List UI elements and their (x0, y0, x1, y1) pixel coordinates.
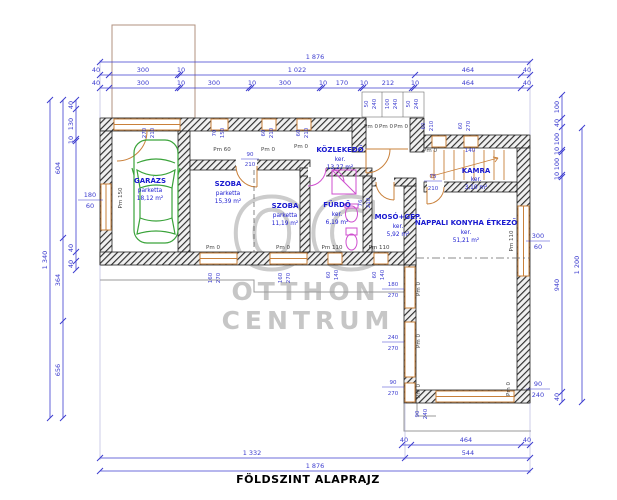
room-finish: parketta (216, 191, 241, 197)
room-name: SZOBA (272, 202, 299, 210)
room-name: SZOBA (215, 180, 242, 188)
opening-label: 270 (216, 272, 222, 283)
opening-label: 60 (296, 129, 302, 136)
room-area: 18,12 m² (137, 195, 163, 202)
dim-label: 300 (532, 232, 544, 240)
pm-label: Pm 0 (506, 382, 512, 396)
room-area: 51,21 m² (453, 237, 479, 244)
dim-label: 300 (137, 66, 149, 74)
opening-label: 140 (465, 148, 476, 154)
dim-label: 50 (364, 100, 370, 107)
drawing-title: FÖLDSZINT ALAPRAJZ (236, 472, 380, 486)
dim-label: 10 (411, 79, 419, 87)
opening-label: 160 (278, 272, 284, 283)
pm-label: Pm 0 (276, 245, 290, 251)
opening-label: 240 (423, 408, 429, 419)
dim-label: 50 (406, 100, 412, 107)
opening-label: 60 (458, 122, 464, 129)
room-area: 15,39 m² (215, 198, 241, 205)
opening-label: 210 (150, 127, 156, 138)
opening-label: 75 (430, 174, 437, 180)
opening-label: 150 (220, 127, 226, 138)
opening-label: 70 (212, 129, 218, 136)
dim-label: 464 (462, 79, 474, 87)
opening-label: 60 (421, 122, 427, 129)
room-finish: parketta (273, 213, 298, 219)
room-label-nappali: NAPPALI KONYHA ÉTKEZŐ ker. 51,21 m² (415, 218, 517, 244)
opening-label: 270 (142, 127, 148, 138)
dim-label: 1 200 (573, 256, 581, 275)
opening-label: 240 (388, 335, 399, 341)
dim-label: 40 (67, 260, 75, 268)
pm-label: Pm 0 (394, 124, 408, 130)
dim-label: 40 (67, 244, 75, 252)
room-name: KÖZLEKEDŐ (316, 145, 363, 154)
dim-label: 464 (460, 436, 472, 444)
opening-label: 180 (388, 282, 399, 288)
room-name: GARÁZS (134, 176, 166, 185)
dim-label: 100 (553, 101, 561, 113)
room-label-szoba1: SZOBA parketta 15,39 m² (215, 180, 242, 205)
room-area: 11,19 m² (272, 220, 298, 227)
dim-label: 212 (382, 79, 394, 87)
dim-label: 10 (177, 66, 185, 74)
pm-label: Pm 0 (206, 245, 220, 251)
dim-label: 10 (360, 79, 368, 87)
dim-label: 300 (279, 79, 291, 87)
dim-label: 100 (553, 158, 561, 170)
dim-label: 60 (534, 243, 542, 251)
opening-label: 90 (390, 380, 397, 386)
room-label-szoba2: SZOBA parketta 11,19 m² (272, 202, 299, 227)
dim-label: 1 022 (288, 66, 307, 74)
dim-label: 1 332 (243, 449, 262, 457)
opening-label: 90 (415, 410, 421, 417)
dim-label: 240 (393, 98, 399, 109)
dim-label: 130 (67, 118, 75, 130)
opening-label: 76 (358, 199, 364, 206)
pm-label: Pm 0 (416, 282, 422, 296)
dim-label: 100 (553, 133, 561, 145)
pm-label: Pm 110 (509, 230, 515, 251)
dim-label: 1 340 (41, 251, 49, 270)
pm-label: Pm 0 (416, 334, 422, 348)
dim-label: 10 (177, 79, 185, 87)
room-area: 13,27 m² (327, 164, 353, 171)
room-area: 3,10 m² (465, 184, 488, 191)
dim-label: 940 (553, 279, 561, 291)
opening-label: 270 (286, 272, 292, 283)
room-finish: ker. (335, 157, 346, 163)
opening-label: 210 (245, 162, 256, 168)
pm-label: Pm 110 (322, 245, 343, 251)
opening-label: 210 (366, 197, 372, 208)
dim-label: 240 (532, 391, 544, 399)
dim-label: 656 (54, 364, 62, 376)
dim-label: 1 876 (306, 462, 325, 470)
floorplan-page: OC OTTHON CENTRUM (0, 0, 617, 500)
dim-label: 1 876 (306, 53, 325, 61)
room-label-garage: GARÁZS parketta 18,12 m² (134, 176, 166, 202)
opening-label: 210 (428, 186, 439, 192)
dim-label: 40 (92, 66, 100, 74)
dim-label: 40 (523, 66, 531, 74)
dim-label: 10 (319, 79, 327, 87)
dim-label: 10 (248, 79, 256, 87)
dim-label: 40 (523, 436, 531, 444)
pm-label: Pm 110 (369, 245, 390, 251)
opening-label: 160 (208, 272, 214, 283)
pm-label: Pm 150 (118, 187, 124, 208)
opening-label: 270 (388, 293, 399, 299)
room-name: NAPPALI KONYHA ÉTKEZŐ (415, 218, 517, 227)
room-label-kamra: KAMRA ker. 3,10 m² (462, 167, 491, 191)
opening-label: 210 (269, 127, 275, 138)
opening-label: 210 (429, 120, 435, 131)
dim-label: 364 (54, 274, 62, 286)
room-finish: ker. (471, 177, 482, 183)
watermark-line2: CENTRUM (222, 306, 395, 335)
pm-label: Pm 0 (294, 144, 308, 150)
dim-label: 240 (372, 98, 378, 109)
room-finish: ker. (461, 230, 472, 236)
opening-label: 140 (334, 269, 340, 280)
dim-label: 464 (462, 66, 474, 74)
dim-label: 300 (208, 79, 220, 87)
pm-label: Pm 0 (364, 124, 378, 130)
dim-label: 544 (462, 449, 474, 457)
dim-label: 604 (54, 162, 62, 174)
dim-label: 60 (86, 202, 94, 210)
opening-label: 270 (388, 346, 399, 352)
room-finish: ker. (332, 212, 343, 218)
dim-label: 300 (137, 79, 149, 87)
room-area: 5,92 m² (387, 231, 410, 238)
room-finish: ker. (393, 224, 404, 230)
opening-label: 270 (388, 391, 399, 397)
room-name: KAMRA (462, 167, 491, 175)
opening-label: 210 (304, 127, 310, 138)
pm-label: Pm 0 (416, 384, 422, 398)
pm-label: Pm 0 (379, 124, 393, 130)
opening-label: 90 (247, 152, 254, 158)
walls-layer (100, 118, 530, 403)
stairs (430, 150, 504, 180)
opening-label: 60 (372, 271, 378, 278)
opening-label: 140 (380, 269, 386, 280)
dim-label: 170 (336, 79, 348, 87)
room-name: FÜRDŐ (323, 200, 351, 209)
dim-label: 100 (385, 98, 391, 109)
dim-label: 240 (414, 98, 420, 109)
dim-label: 90 (534, 380, 542, 388)
floorplan-drawing: OC OTTHON CENTRUM (0, 0, 617, 500)
opening-label: 270 (466, 120, 472, 131)
dim-label: 40 (92, 79, 100, 87)
room-area: 6,19 m² (326, 219, 349, 226)
dim-label: 180 (84, 191, 96, 199)
room-finish: parketta (138, 188, 163, 194)
opening-label: 60 (261, 129, 267, 136)
dim-label: 40 (523, 79, 531, 87)
pm-label: Pm 0 (261, 147, 275, 153)
opening-label: 60 (326, 271, 332, 278)
pm-label: Pm 60 (213, 147, 231, 153)
pm-label: Pm 0 (423, 148, 437, 154)
